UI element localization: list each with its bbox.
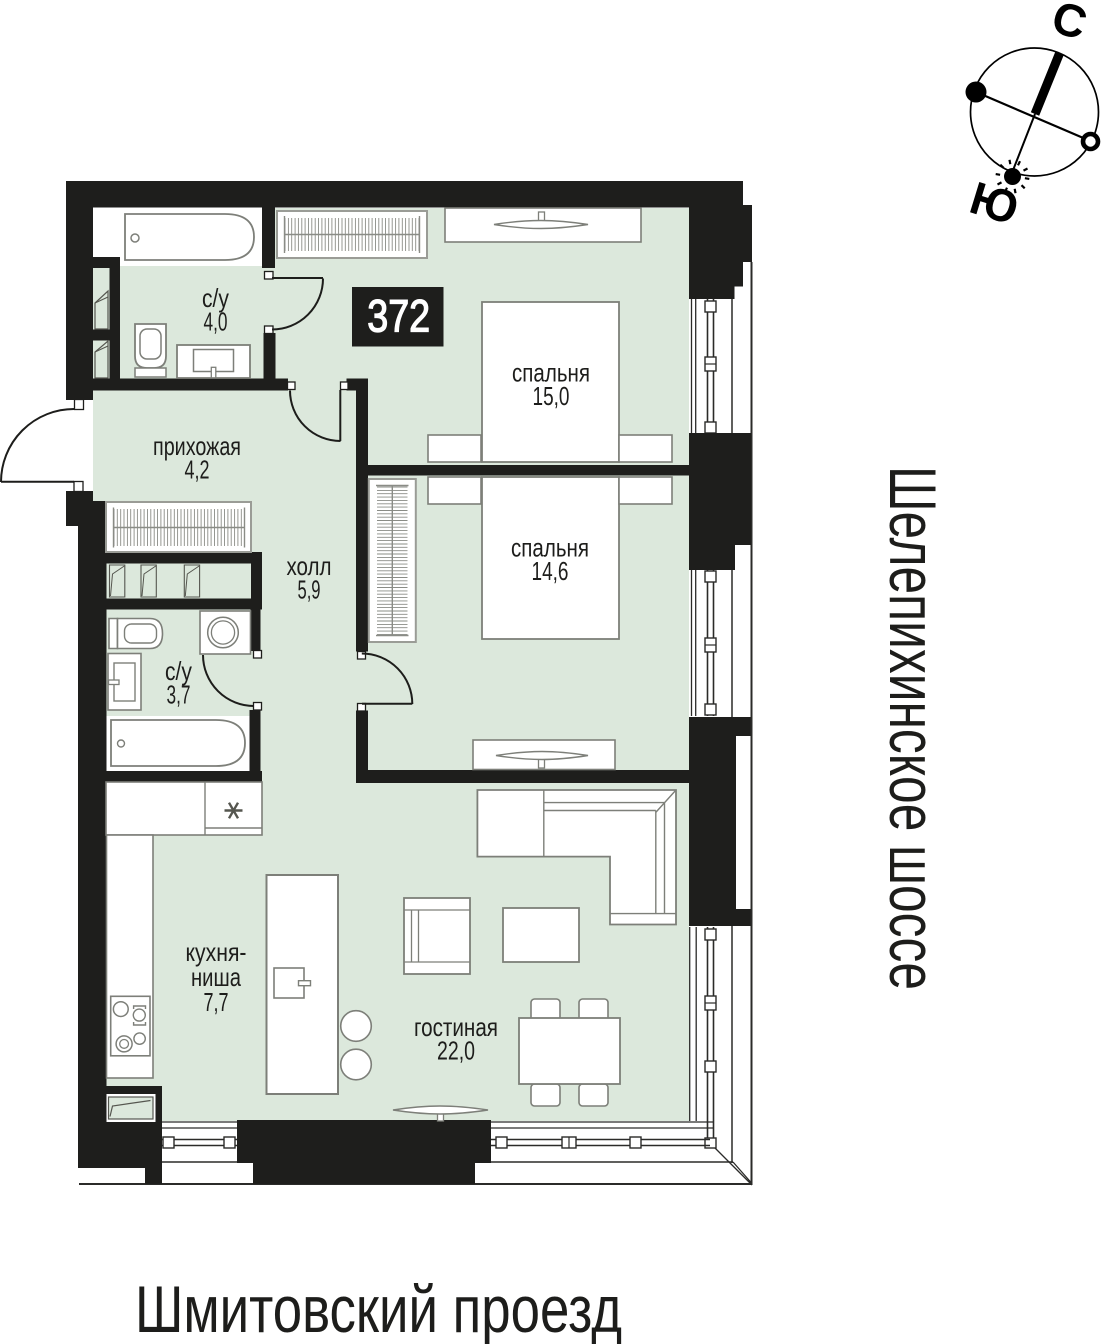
svg-text:7,7: 7,7 xyxy=(204,987,229,1017)
svg-text:4,2: 4,2 xyxy=(185,455,210,485)
svg-text:Шмитовский проезд: Шмитовский проезд xyxy=(135,1272,622,1344)
svg-text:3,7: 3,7 xyxy=(167,680,191,710)
svg-text:15,0: 15,0 xyxy=(533,381,570,411)
svg-text:С: С xyxy=(1046,0,1093,50)
svg-text:14,6: 14,6 xyxy=(532,556,569,586)
svg-text:372: 372 xyxy=(367,291,430,342)
svg-text:Шелепихинское шоссе: Шелепихинское шоссе xyxy=(876,466,950,990)
svg-text:5,9: 5,9 xyxy=(298,575,321,605)
svg-text:22,0: 22,0 xyxy=(437,1036,475,1066)
svg-text:4,0: 4,0 xyxy=(204,307,228,337)
